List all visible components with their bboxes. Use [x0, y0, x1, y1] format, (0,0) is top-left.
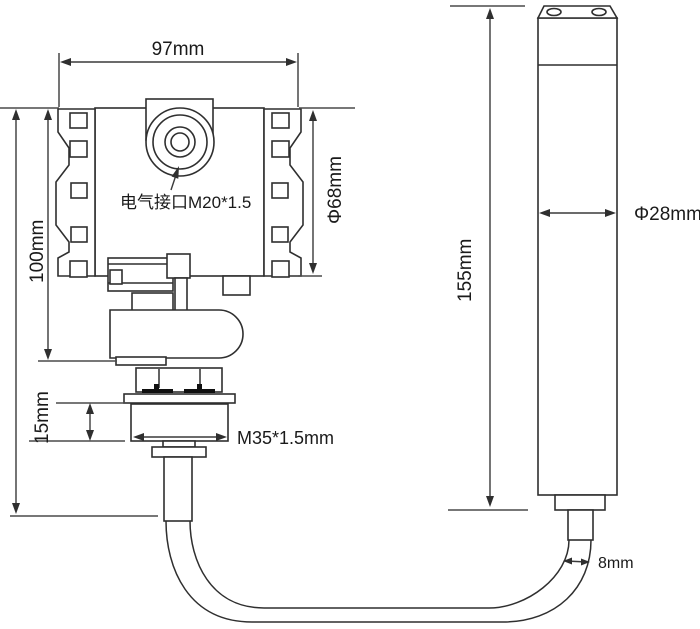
thread-spec-label: M35*1.5mm [237, 428, 334, 448]
dim-head-width: 97mm [59, 39, 298, 107]
head-diameter-label: Φ68mm [325, 156, 346, 224]
stem-bracket [132, 293, 173, 311]
probe-cable-fitting [568, 510, 593, 540]
level-transmitter-dimension-diagram: 97mm 100mm 15mm [0, 0, 700, 629]
dimension-drawing-canvas: 97mm 100mm 15mm [0, 0, 700, 629]
sensor-probe [538, 6, 617, 540]
gasket-right [184, 389, 215, 393]
probe-length-label: 155mm [455, 239, 476, 302]
dim-thread-height: 15mm [29, 391, 125, 444]
mounting-flange [124, 394, 235, 403]
probe-body [538, 18, 617, 495]
thread-height-label: 15mm [32, 391, 53, 444]
outlet-tube [164, 457, 192, 521]
transmitter-head [56, 99, 303, 521]
head-height-label: 100mm [27, 220, 48, 283]
gasket-left [142, 389, 173, 393]
dim-head-diameter: Φ68mm [298, 108, 355, 276]
head-width-label: 97mm [152, 39, 205, 60]
probe-diameter-label: Φ28mm [634, 204, 700, 225]
connection-cable [166, 521, 591, 622]
lower-collar [152, 447, 206, 457]
probe-top-hole-right [592, 9, 606, 16]
seal-spool [136, 368, 222, 392]
cable-diameter-label: 8mm [598, 555, 634, 572]
electrical-entry-port [146, 108, 214, 176]
dim-probe-length: 155mm [448, 6, 528, 510]
thread-nut [131, 404, 228, 441]
probe-bottom-step [555, 495, 605, 510]
nut-neck [163, 441, 195, 447]
stem-column [175, 278, 187, 311]
neck-assembly [108, 254, 250, 521]
neck-boss [110, 310, 243, 358]
neck-step [116, 357, 166, 365]
right-lug [223, 276, 250, 295]
junction-block [167, 254, 190, 278]
dim-cable-diameter: 8mm [563, 555, 634, 572]
probe-top-hole-left [547, 9, 561, 16]
electrical-interface-label: 电气接口M20*1.5 [120, 193, 251, 212]
